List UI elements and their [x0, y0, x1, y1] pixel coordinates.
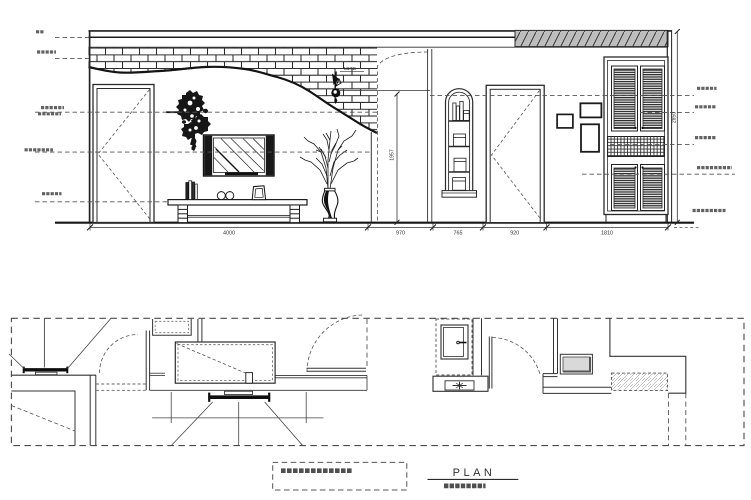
svg-text:1957: 1957 — [390, 149, 396, 161]
svg-text:2850: 2850 — [672, 112, 678, 124]
svg-text:4000: 4000 — [223, 231, 235, 237]
svg-text:765: 765 — [454, 231, 463, 237]
svg-text:1810: 1810 — [601, 231, 613, 237]
svg-text:920: 920 — [510, 231, 519, 237]
svg-text:PLAN: PLAN — [453, 467, 496, 479]
svg-text:1Ω7Ω: 1Ω7Ω — [344, 66, 357, 72]
svg-text:970: 970 — [396, 231, 405, 237]
